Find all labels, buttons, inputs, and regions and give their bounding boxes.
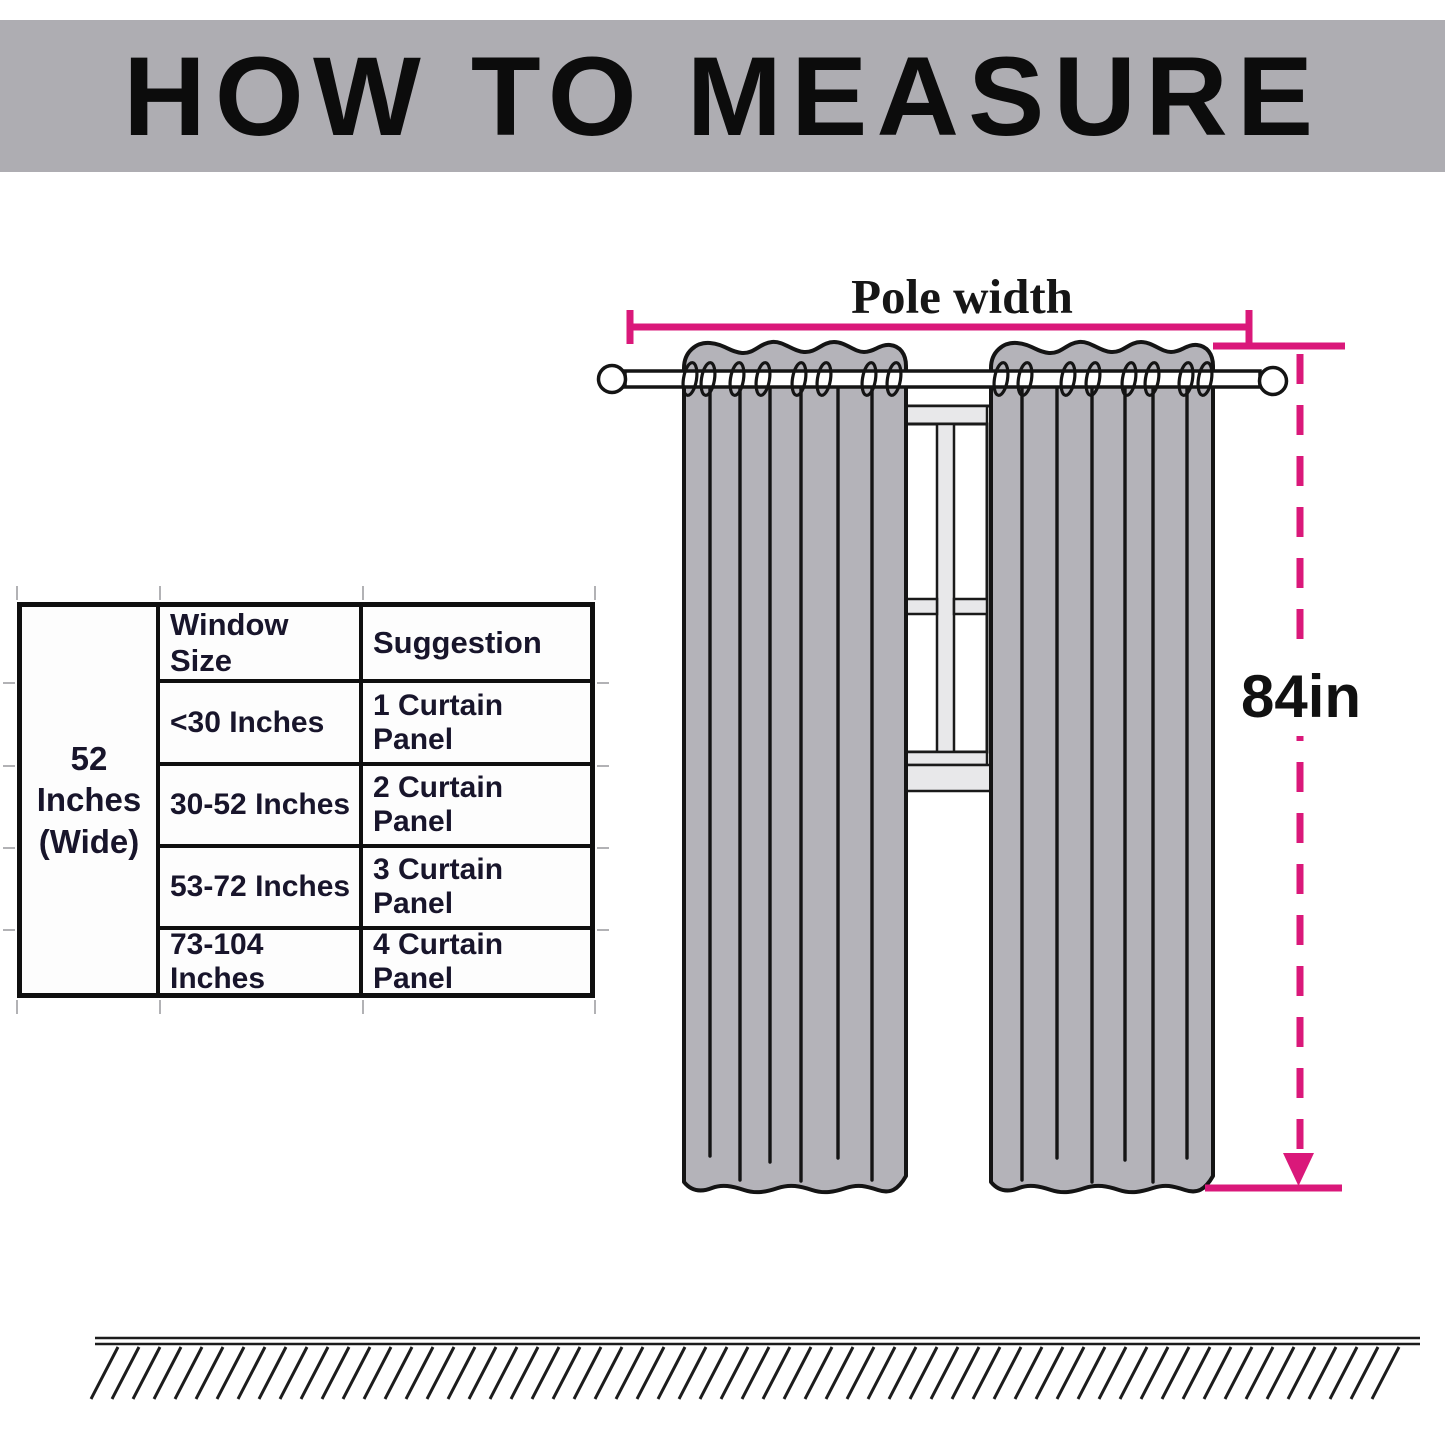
curtain-panel-left (684, 342, 906, 1192)
table-cell-suggestion: 2 Curtain Panel (363, 766, 590, 844)
window-upper-band (905, 406, 987, 424)
table-cell-suggestion: 4 Curtain Panel (363, 930, 590, 993)
window-sill (899, 765, 993, 791)
pole-bar (625, 371, 1260, 387)
floor (91, 1338, 1420, 1399)
panel-width-line2: (Wide) (39, 821, 140, 862)
panel-width-line1: 52 Inches (22, 738, 156, 821)
table-cell-window-size: 30-52 Inches (160, 766, 359, 844)
table-header-window-size: Window Size (160, 607, 359, 679)
floor-hatching (91, 1347, 1399, 1399)
pole-width-measure: Pole width (630, 269, 1249, 344)
how-to-measure-infographic: HOW TO MEASURE (0, 0, 1445, 1445)
window-center-mullion (937, 424, 954, 752)
table-cell-window-size: 53-72 Inches (160, 848, 359, 926)
table-header-suggestion: Suggestion (363, 607, 590, 679)
curtain-panel-right (991, 342, 1213, 1192)
pole-width-label: Pole width (851, 269, 1073, 324)
window-lower-band (905, 752, 987, 765)
table-cell-suggestion: 1 Curtain Panel (363, 683, 590, 762)
curtain-right-body (991, 342, 1213, 1192)
table-cell-suggestion: 3 Curtain Panel (363, 848, 590, 926)
height-label: 84in (1241, 663, 1361, 730)
window-transom-left (905, 599, 937, 614)
window-illustration (899, 384, 993, 791)
table-cell-window-size: <30 Inches (160, 683, 359, 762)
table-cell-window-size: 73-104 Inches (160, 930, 359, 993)
size-chart-table: 52 Inches (Wide) Window Size Suggestion … (17, 602, 595, 998)
height-arrowhead-down (1283, 1153, 1314, 1186)
curtain-height-measure: 84in (1205, 346, 1366, 1188)
pole-finial-right (1260, 368, 1287, 395)
table-cell-panel-width: 52 Inches (Wide) (22, 607, 156, 993)
window-transom-right (954, 599, 987, 614)
pole-finial-left (599, 366, 626, 393)
